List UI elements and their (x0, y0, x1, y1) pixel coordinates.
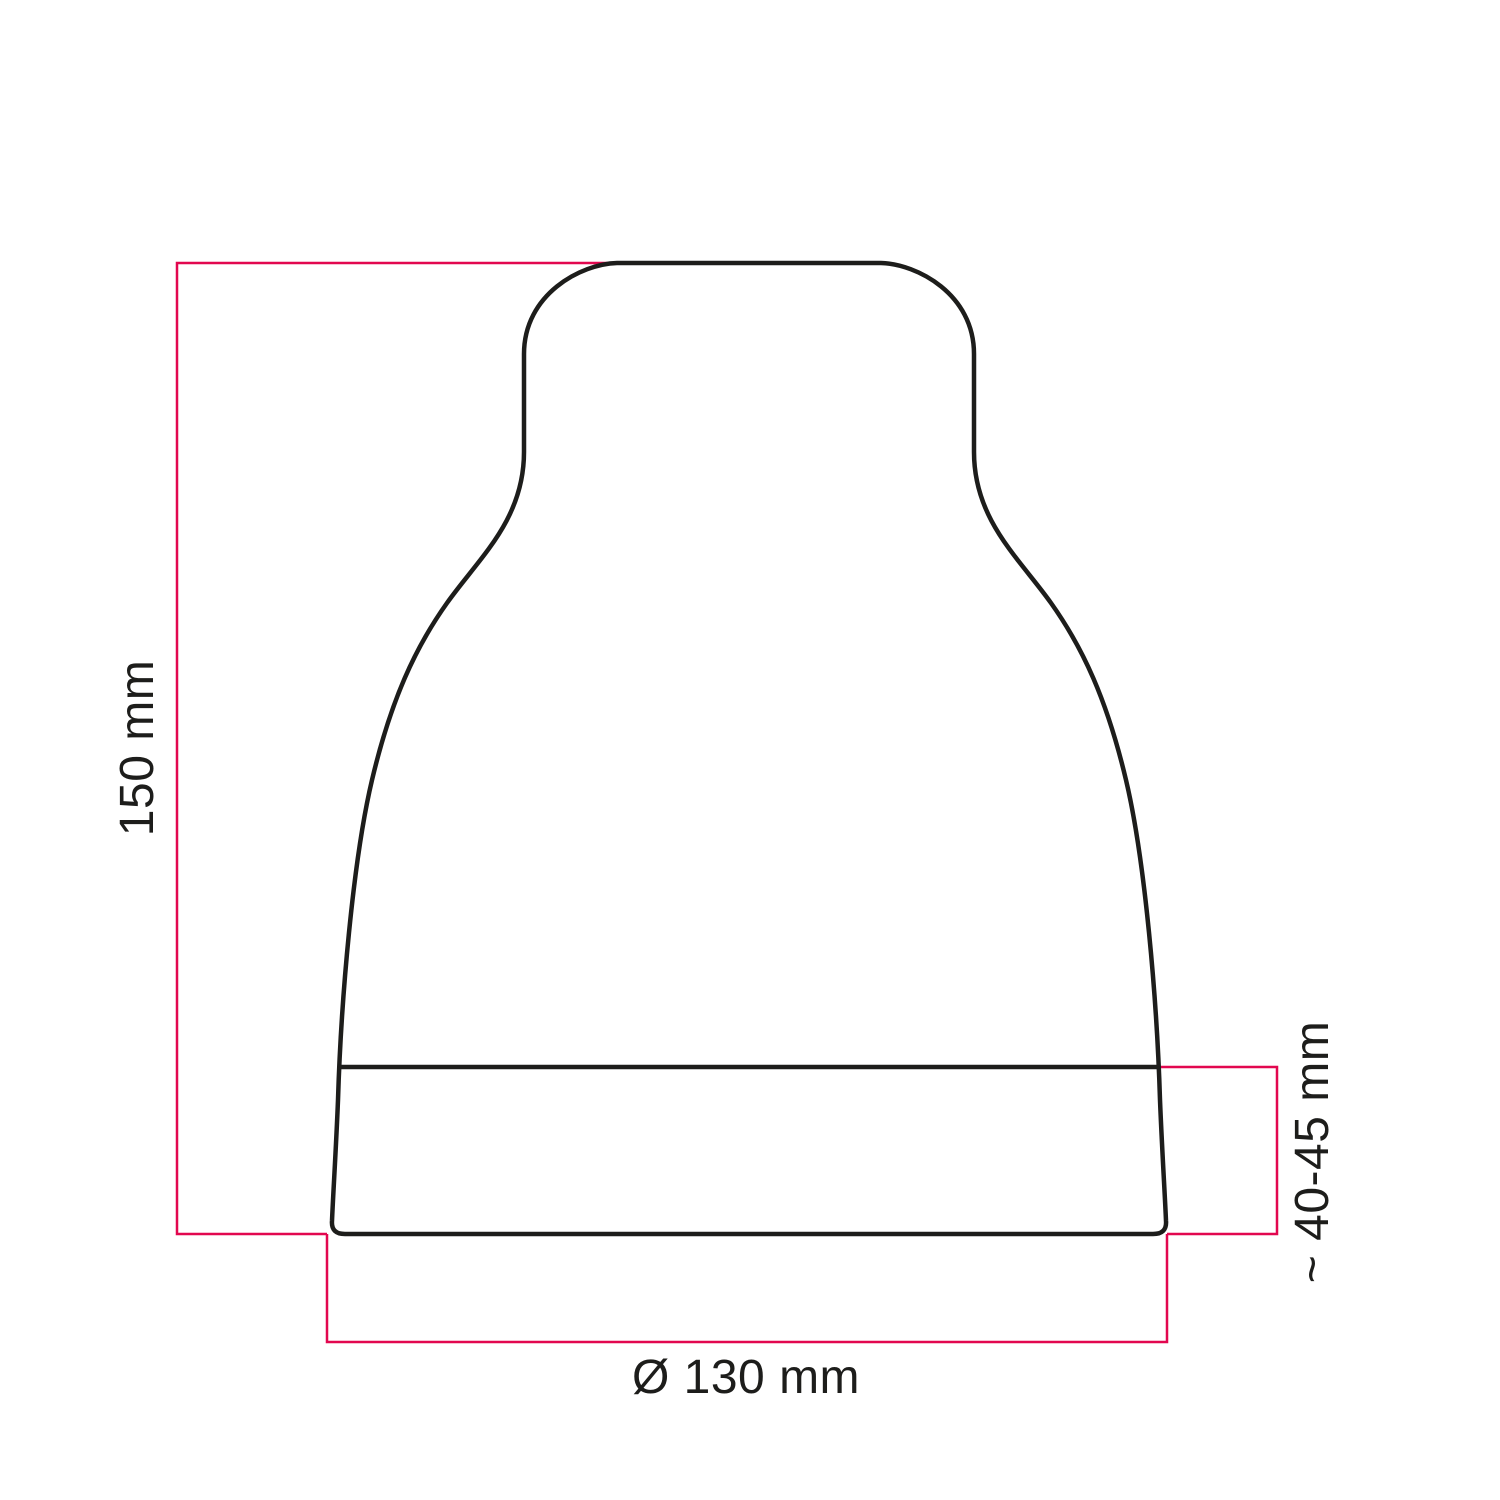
lampshade-outline (332, 263, 1166, 1234)
ferrule-height-dimension-line (1159, 1067, 1277, 1234)
height-dimension-line (177, 263, 617, 1234)
ferrule-height-dimension-label: ~ 40-45 mm (1289, 1021, 1337, 1283)
lampshade-technical-drawing: 150 mm ~ 40-45 mm Ø 130 mm (0, 0, 1500, 1500)
diameter-dimension-line (327, 1234, 1167, 1342)
height-dimension-label: 150 mm (114, 660, 162, 836)
drawing-canvas (0, 0, 1500, 1500)
diameter-dimension-label: Ø 130 mm (632, 1354, 860, 1402)
